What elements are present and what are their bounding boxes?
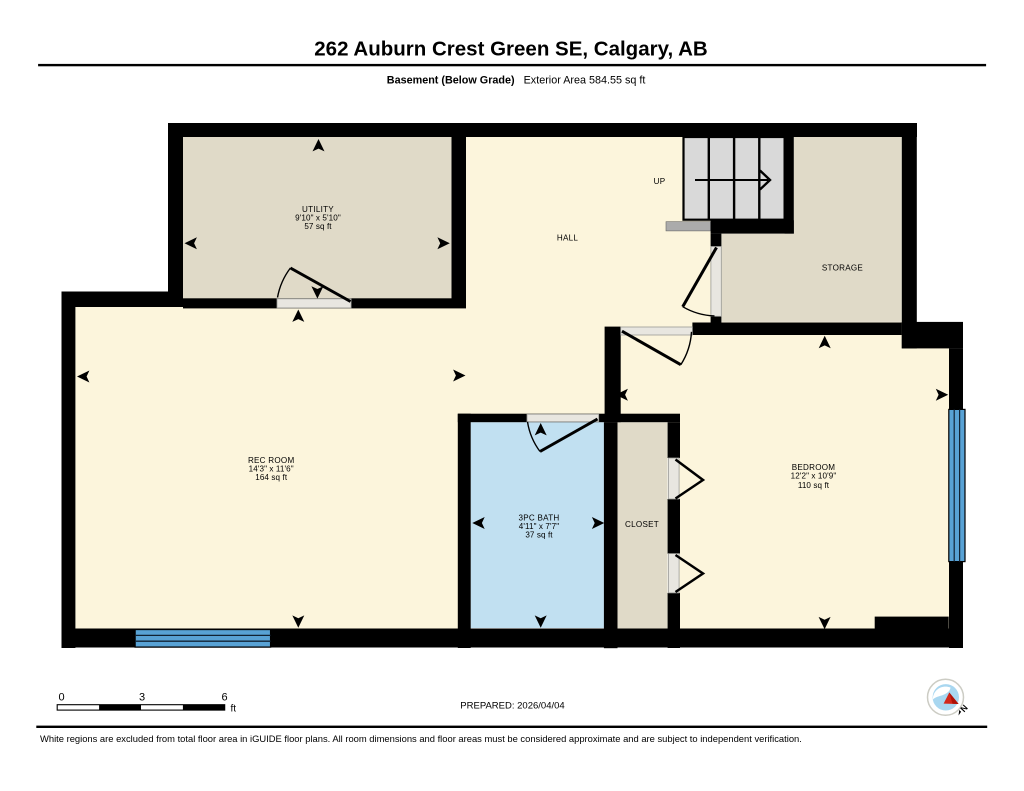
svg-text:0: 0	[58, 692, 64, 704]
svg-text:PREPARED: 2026/04/04: PREPARED: 2026/04/04	[460, 701, 564, 712]
svg-text:3: 3	[139, 692, 145, 704]
svg-text:Basement (Below Grade): Basement (Below Grade)	[387, 74, 515, 86]
svg-text:ft: ft	[231, 704, 237, 715]
svg-text:110 sq ft: 110 sq ft	[798, 481, 830, 490]
svg-text:BEDROOM: BEDROOM	[792, 463, 836, 472]
svg-text:White regions are excluded fro: White regions are excluded from total fl…	[40, 733, 802, 744]
svg-text:HALL: HALL	[557, 233, 578, 242]
svg-text:262 Auburn Crest Green SE, Cal: 262 Auburn Crest Green SE, Calgary, AB	[314, 37, 707, 60]
svg-text:37 sq ft: 37 sq ft	[525, 530, 553, 539]
svg-text:UP: UP	[654, 177, 666, 186]
svg-text:STORAGE: STORAGE	[822, 264, 864, 273]
svg-text:12'2" x 10'9": 12'2" x 10'9"	[791, 472, 837, 481]
svg-text:57 sq ft: 57 sq ft	[304, 222, 332, 231]
svg-text:164 sq ft: 164 sq ft	[255, 473, 288, 482]
svg-text:6: 6	[221, 692, 227, 704]
svg-text:Exterior Area 584.55 sq ft: Exterior Area 584.55 sq ft	[524, 74, 646, 86]
svg-text:CLOSET: CLOSET	[625, 520, 659, 529]
